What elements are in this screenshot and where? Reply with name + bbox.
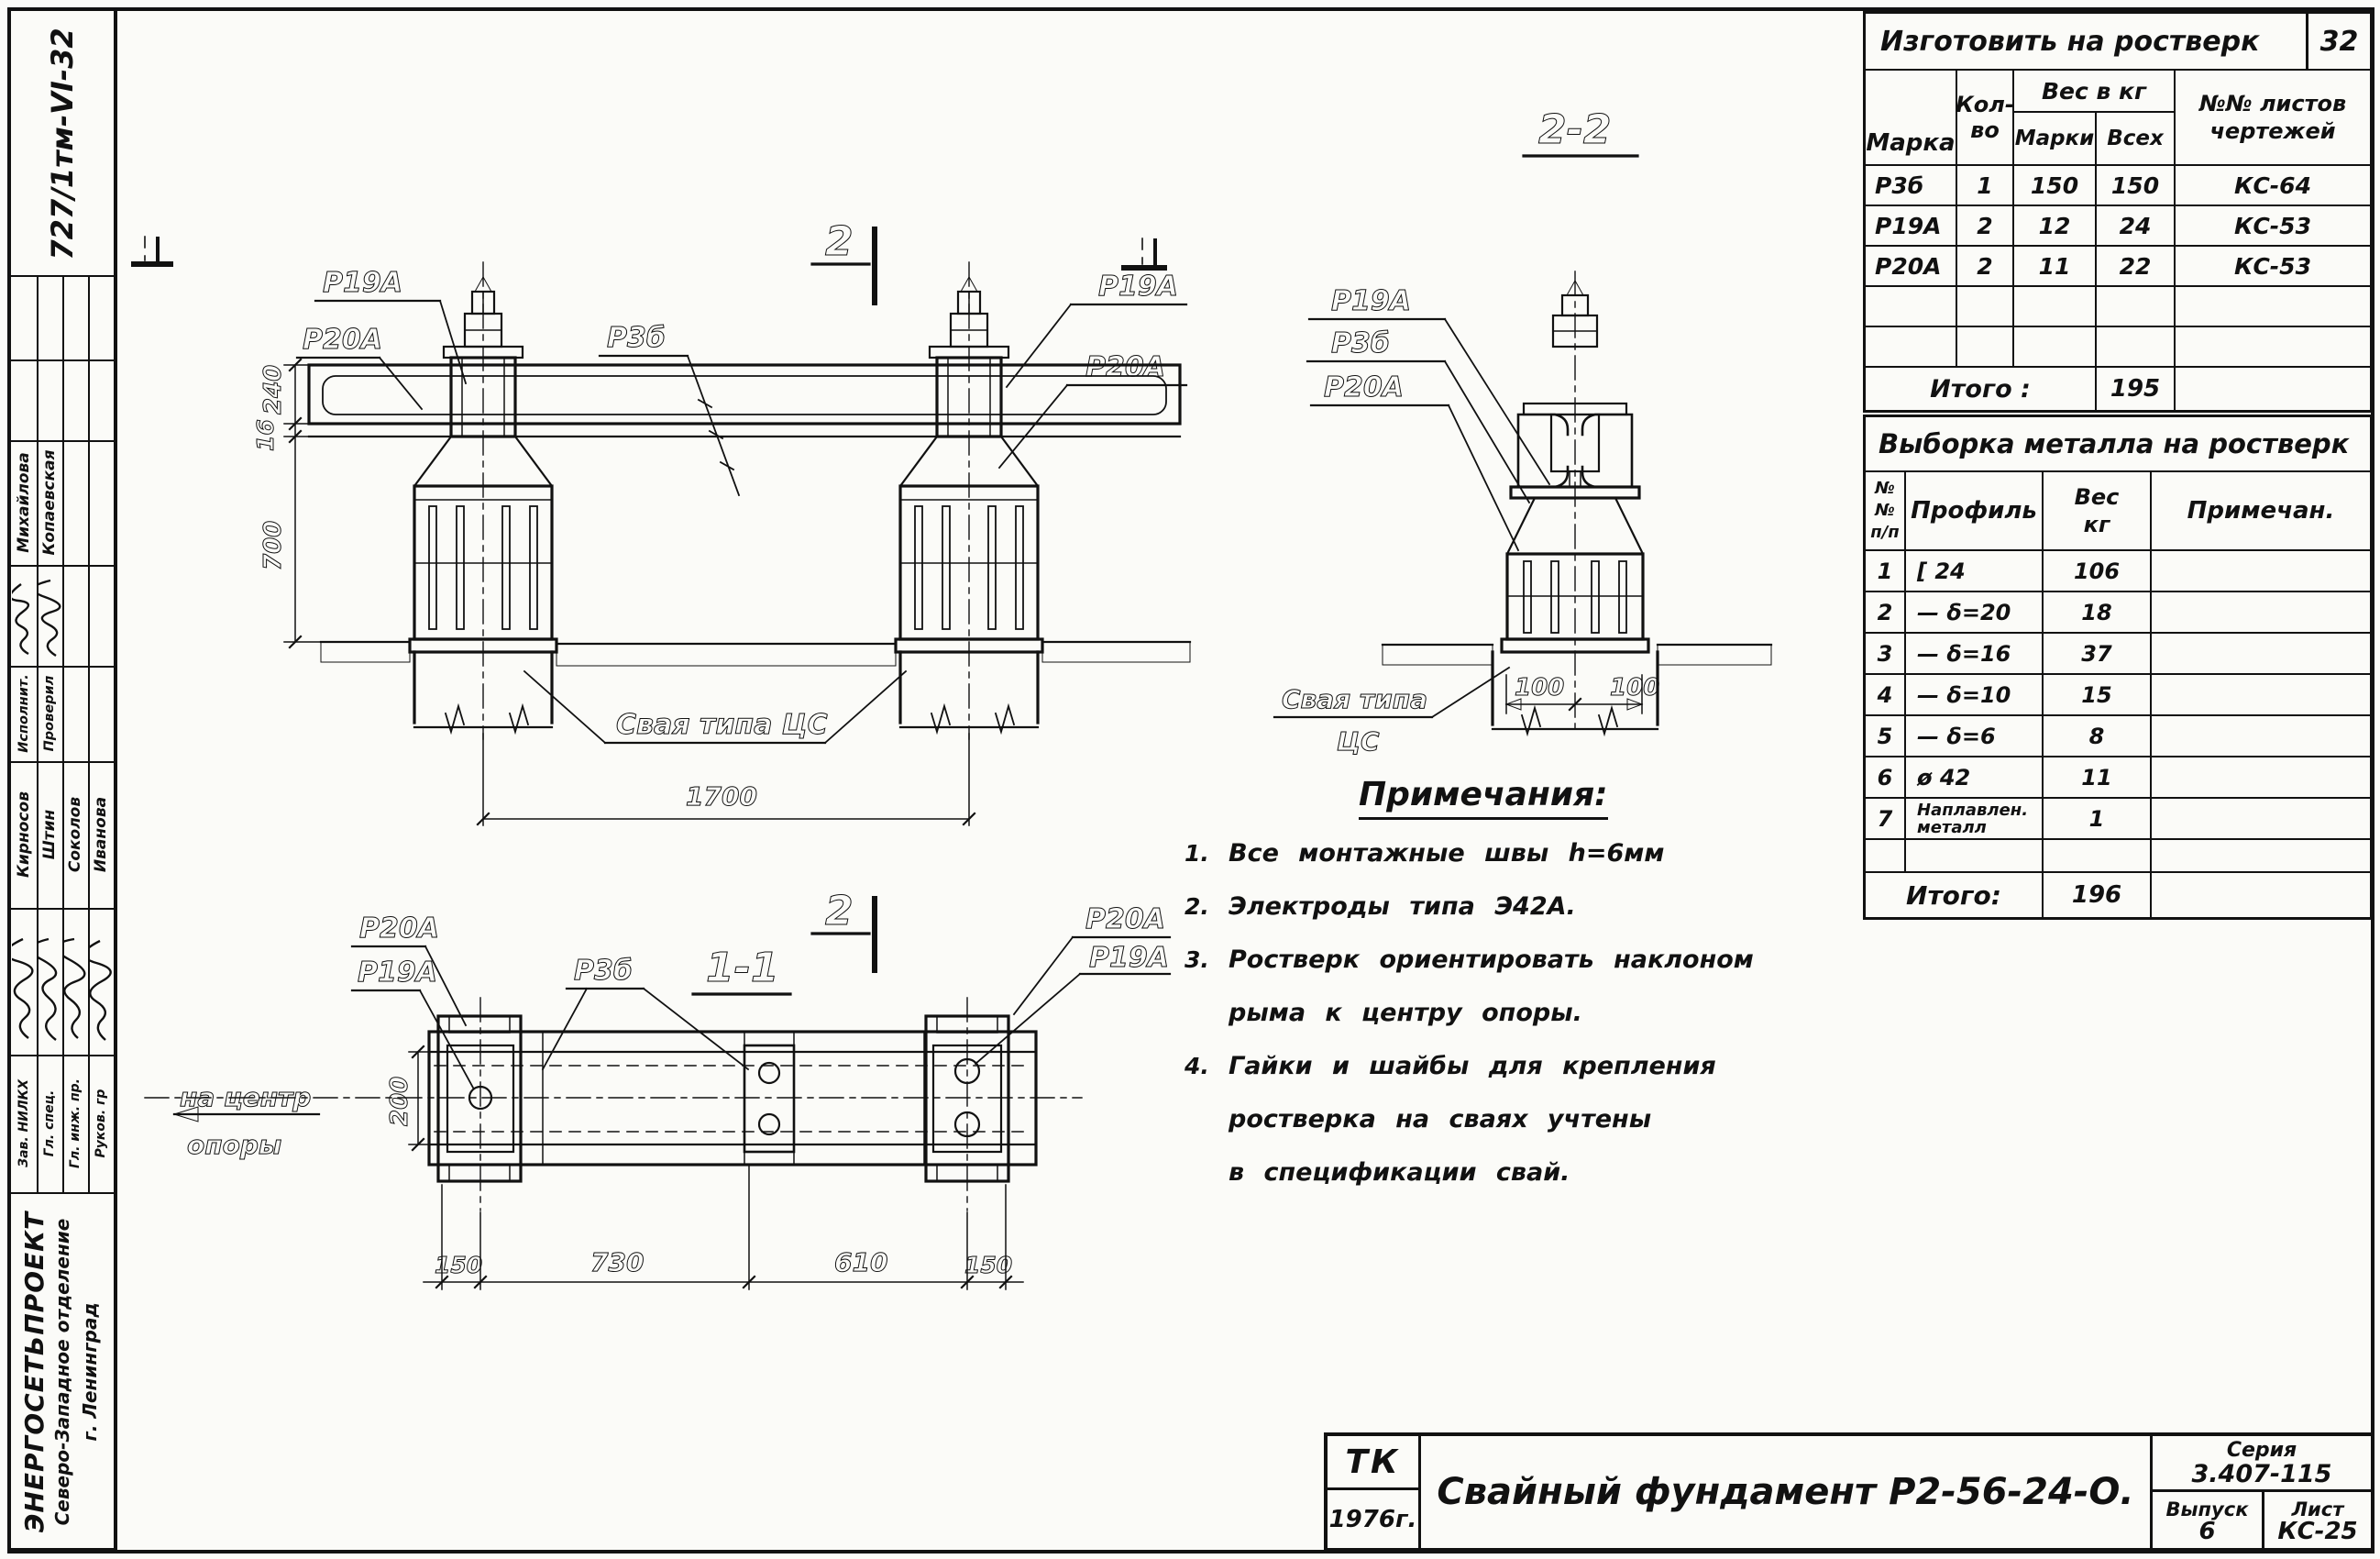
signer-name: Кирносов — [11, 761, 37, 908]
fabrication-table: Изготовить на ростверк 32 Марка Кол- во … — [1863, 11, 2373, 413]
svg-text:Р19А: Р19А — [1089, 942, 1169, 974]
col-header-profile: Профиль — [1906, 472, 2044, 549]
note-item: 2. Электроды типа Э42А. — [1184, 880, 1863, 934]
svg-text:Р20А: Р20А — [359, 912, 439, 945]
signature-scribble — [11, 917, 37, 1055]
svg-text:Р3б: Р3б — [574, 955, 633, 987]
signature-scribble — [37, 565, 62, 666]
section-1-mark-right — [1124, 238, 1164, 268]
title-block-stamp: ТК — [1328, 1436, 1418, 1490]
plan-end-assembly-left — [438, 998, 521, 1211]
signature-scribble — [88, 917, 114, 1055]
mark-p19a-plan-right: Р19А — [975, 942, 1170, 1064]
note-item: 3. Ростверк ориентировать наклоном рыма … — [1184, 934, 1863, 1040]
svg-text:Р20А: Р20А — [1324, 371, 1404, 404]
table-row: Р3б 1 150 150 КС-64 — [1866, 166, 2370, 206]
svg-text:ЦС: ЦС — [1337, 726, 1380, 757]
series-cell: Серия 3.407-115 — [2153, 1436, 2371, 1492]
table-row: Р20А 2 11 22 КС-53 — [1866, 247, 2370, 287]
table-row: 2 — δ=20 18 — [1866, 592, 2370, 634]
mark-p19a-plan-left: Р19А — [352, 956, 473, 1088]
col-header-weight-all: Всех — [2097, 113, 2174, 164]
ground-hatch-22 — [1383, 645, 1771, 665]
section-2-mark-top: 2 — [812, 218, 875, 303]
col-header-weight: Вес кг — [2044, 472, 2152, 549]
signer-name: Иванова — [88, 761, 114, 908]
elevation-view: 240 16 700 1700 Свая типа ЦС Р19А — [134, 218, 1190, 970]
dim-150-right: 150 — [964, 1252, 1012, 1278]
plan-view-1-1: 1-1 — [145, 903, 1170, 1289]
metal-takeoff-table: Выборка металла на ростверк №№ п/п Профи… — [1863, 415, 2373, 920]
signer-role: Зав. НИЛКХ — [11, 1055, 37, 1192]
title-block-year: 1976г. — [1328, 1490, 1418, 1548]
dim-16: 16 — [252, 419, 279, 451]
table-row — [1866, 840, 2370, 873]
fab-table-badge: 32 — [2306, 14, 2370, 69]
table-row — [1866, 287, 2370, 327]
dim-200: 200 — [386, 1077, 413, 1126]
dim-200-group: 200 — [386, 1046, 429, 1150]
svg-text:2: 2 — [825, 218, 854, 265]
fab-table-title: Изготовить на ростверк — [1866, 14, 2306, 69]
org-city: г. Ленинград — [76, 1302, 104, 1441]
col-header-sheets: №№ листов чертежей — [2176, 71, 2370, 164]
signer-name: Михайлова — [11, 440, 37, 565]
table-row: 5 — δ=6 8 — [1866, 716, 2370, 757]
notes-title: Примечания: — [1359, 776, 1608, 820]
svg-text:Р3б: Р3б — [607, 322, 666, 354]
dim-1700-group: 1700 — [478, 734, 975, 825]
svg-text:Р19А: Р19А — [1331, 285, 1411, 317]
note-item: 1. Все монтажные швы h=6мм — [1184, 827, 1863, 880]
signer-role: Гл. инж. пр. — [62, 1055, 88, 1192]
svg-text:Р20А: Р20А — [1085, 903, 1165, 935]
to-support-center-callout: на центр опоры — [174, 1082, 319, 1160]
svg-text:Р20А: Р20А — [1085, 351, 1165, 383]
col-header-weight-each: Марки — [2014, 113, 2097, 164]
svg-text:2: 2 — [825, 888, 854, 934]
dim-100-100-group: 100 100 — [1506, 674, 1659, 713]
dim-100-right: 100 — [1610, 674, 1659, 702]
svg-text:на центр: на центр — [180, 1082, 311, 1112]
signer-role: Проверил — [37, 666, 62, 761]
dim-610: 610 — [834, 1247, 887, 1277]
organization-block: ЭНЕРГОСЕТЬПРОЕКТ Северо-Западное отделен… — [11, 1196, 114, 1548]
svg-text:Р20А: Р20А — [303, 324, 382, 356]
metal-table-title: Выборка металла на ростверк — [1866, 417, 2370, 470]
issue-cell: Выпуск 6 — [2153, 1492, 2264, 1548]
signature-scribble — [62, 917, 88, 1055]
table-row: 7 Наплавлен. металл 1 — [1866, 799, 2370, 840]
mark-p20a-right: Р20А — [999, 351, 1186, 468]
svg-text:Р19А: Р19А — [323, 267, 402, 299]
drawing-sheet: 240 16 700 1700 Свая типа ЦС Р19А — [0, 0, 2380, 1559]
dim-100-left: 100 — [1515, 674, 1564, 702]
plan-1-1-title: 1-1 — [706, 945, 779, 991]
signer-name: Штин — [37, 761, 62, 908]
mark-p3b-22: Р3б — [1307, 327, 1529, 503]
title-block: ТК 1976г. Свайный фундамент Р2-56-24-О. … — [1324, 1432, 2374, 1552]
table-row: Р19А 2 12 24 КС-53 — [1866, 206, 2370, 247]
signer-role: Руков. гр — [88, 1055, 114, 1192]
section-2-2-title: 2-2 — [1538, 106, 1612, 153]
org-name: ЭНЕРГОСЕТЬПРОЕКТ — [21, 1211, 49, 1532]
mark-p3b-elevation: Р3б — [600, 322, 739, 495]
table-row: 6 ø 42 11 — [1866, 757, 2370, 799]
col-header-marka: Марка — [1866, 71, 1957, 164]
notes-block: Примечания: 1. Все монтажные швы h=6мм 2… — [1184, 776, 1863, 1200]
document-title: Свайный фундамент Р2-56-24-О. — [1421, 1436, 2153, 1548]
signature-scribble — [37, 917, 62, 1055]
svg-text:Р19А: Р19А — [358, 956, 437, 989]
signature-scribble — [11, 565, 37, 666]
dim-150-left: 150 — [435, 1252, 482, 1278]
svg-text:Р19А: Р19А — [1098, 271, 1178, 303]
dim-1700: 1700 — [686, 781, 757, 812]
dim-700: 700 — [259, 521, 287, 570]
section-2-mark-bottom: 2 — [812, 888, 875, 970]
pile-type-label-elevation: Свая типа ЦС — [524, 671, 906, 743]
org-branch: Северо-Западное отделение — [49, 1219, 76, 1526]
note-item: 4. Гайки и шайбы для крепления ростверка… — [1184, 1040, 1863, 1200]
svg-text:Свая типа: Свая типа — [1282, 684, 1427, 714]
table-row: 3 — δ=16 37 — [1866, 634, 2370, 675]
col-header-note: Примечан. — [2152, 472, 2370, 549]
table-row — [1866, 327, 2370, 368]
fab-total-label: Итого : — [1866, 368, 2097, 410]
col-header-num: №№ п/п — [1866, 472, 1906, 549]
col-header-weight-group: Вес в кг Марки Всех — [2014, 71, 2176, 164]
section-1-mark-left — [134, 237, 171, 264]
plan-bottom-dims: 150 730 610 150 — [424, 1166, 1023, 1289]
table-row: 4 — δ=10 15 — [1866, 675, 2370, 716]
dim-730: 730 — [590, 1247, 644, 1277]
svg-text:Свая типа ЦС: Свая типа ЦС — [616, 709, 828, 741]
signer-name: Соколов — [62, 761, 88, 908]
dim-240: 240 — [259, 365, 287, 415]
svg-text:Р3б: Р3б — [1331, 327, 1390, 359]
sheet-number-cell: Лист КС-25 — [2264, 1492, 2371, 1548]
metal-total-label: Итого: — [1866, 873, 2044, 917]
pile-type-label-22: Свая типа ЦС — [1274, 668, 1509, 757]
fab-total-value: 195 — [2097, 368, 2176, 410]
table-row: 1 [ 24 106 — [1866, 551, 2370, 592]
plan-end-assembly-right — [926, 998, 1008, 1211]
svg-text:опоры: опоры — [187, 1130, 281, 1160]
ground-hatch — [321, 642, 1190, 666]
signer-role: Гл. спец. — [37, 1055, 62, 1192]
col-header-qty: Кол- во — [1957, 71, 2014, 164]
signer-name: Копаевская — [37, 440, 62, 565]
section-2-2-view: 2-2 — [1274, 106, 1771, 757]
elevation-left-dims: 240 16 700 — [252, 359, 410, 647]
mark-p20a-22: Р20А — [1311, 371, 1518, 550]
sidebar-stamp-column: 727/1тм-VI-32 Михайлова Копаевская Испол… — [7, 7, 117, 1552]
archive-stamp: 727/1тм-VI-32 — [17, 22, 108, 266]
metal-total-value: 196 — [2044, 873, 2152, 917]
signer-role: Исполнит. — [11, 666, 37, 761]
